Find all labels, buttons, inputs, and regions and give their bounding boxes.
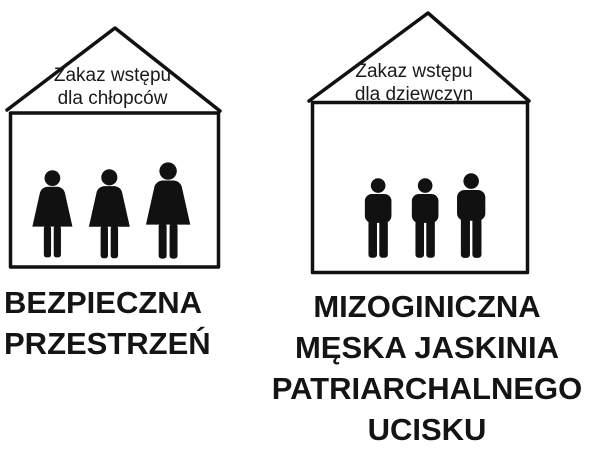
man-icon — [412, 178, 439, 258]
woman-icon — [146, 162, 190, 258]
woman-icon — [89, 169, 130, 258]
man-icon — [457, 173, 485, 258]
right-house-occupants — [365, 173, 485, 258]
woman-icon — [32, 170, 72, 257]
left-roof-sign: Zakaz wstępu dla chłopców — [39, 64, 186, 110]
meme-canvas: Zakaz wstępu dla chłopców Zakaz wstępu d… — [0, 0, 600, 466]
right-house-caption: MIZOGINICZNA MĘSKA JASKINIA PATRIARCHALN… — [257, 286, 597, 450]
left-house-caption: BEZPIECZNA PRZESTRZEŃ — [4, 282, 229, 364]
left-house-occupants — [32, 162, 190, 258]
right-roof-sign: Zakaz wstępu dla dziewczyn — [340, 60, 488, 106]
man-icon — [365, 178, 392, 258]
